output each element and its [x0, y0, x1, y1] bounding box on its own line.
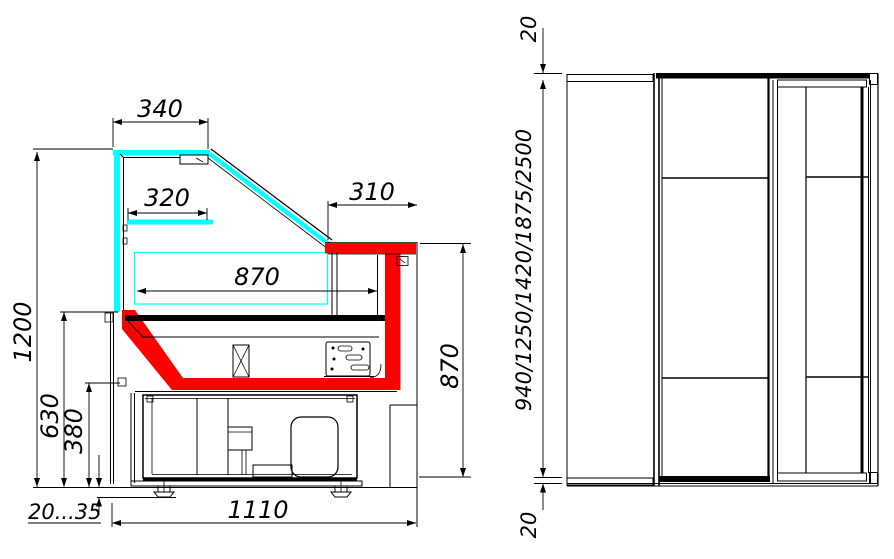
door2-top-strip [778, 80, 867, 87]
dim-canopy-width-label: 340 [137, 95, 183, 123]
canopy-structure [120, 149, 332, 310]
front-lower-bracket [118, 378, 126, 386]
door2-bottom-strip [778, 473, 867, 481]
starter-box [228, 427, 252, 450]
cabinet-outline [567, 73, 878, 486]
corner-bracket-right [347, 396, 353, 402]
front-view-dimensions: 20 940/1250/1420/1875/2500 20 [512, 16, 562, 539]
front-view: 20 940/1250/1420/1875/2500 20 [512, 16, 878, 539]
glass-panels [113, 150, 330, 312]
red-worktop [325, 243, 416, 254]
dim-length-options-label: 940/1250/1420/1875/2500 [512, 129, 536, 411]
lamp-mark [196, 158, 203, 162]
technical-drawing-page: 340 320 310 870 1200 [0, 0, 894, 559]
foot-pad-left [154, 492, 174, 497]
slant-glass-upper-edge [211, 149, 332, 240]
machine-housing [143, 395, 357, 478]
lamp-housing [180, 155, 208, 164]
panel-dot-1 [332, 347, 335, 350]
dim-top-panel-label: 20 [517, 16, 541, 43]
side-view-dimensions: 340 320 310 870 1200 [9, 95, 471, 527]
display-opening-outline [135, 253, 328, 305]
panel-dot-3 [333, 358, 336, 361]
dim-base-width-label: 1110 [227, 496, 288, 524]
dim-worktop-width-label: 310 [349, 178, 395, 206]
foot-pad-right [331, 492, 351, 497]
slanted-glass-panel [210, 154, 330, 245]
well-corner-radius [370, 364, 381, 378]
vent-slot-1 [338, 346, 352, 351]
dim-base-height-label: 380 [60, 408, 88, 454]
glass-shelf [127, 220, 213, 225]
panel-dot-2 [362, 348, 365, 351]
front-panel-bracket [105, 313, 113, 322]
display-case-drawing: 340 320 310 870 1200 [0, 0, 894, 559]
worktop-bracket-mark [400, 259, 405, 263]
compressor [291, 417, 338, 477]
side-section-view: 340 320 310 870 1200 [9, 95, 471, 527]
vent-slot-2 [346, 355, 362, 360]
front-glass-panel [114, 150, 120, 312]
panel-dot-4 [331, 368, 334, 371]
dim-bottom-panel-label: 20 [517, 512, 541, 539]
dim-display-depth-label: 870 [234, 263, 280, 291]
deck-surface [125, 315, 385, 321]
dim-shelf-width-label: 320 [144, 184, 190, 212]
vent-slot-3 [351, 365, 369, 370]
dim-overall-height-label: 1200 [9, 301, 37, 362]
slant-glass-lower-edge [208, 158, 328, 249]
door1-bottom-bar [659, 476, 770, 482]
dim-foot-adjustment-label: 20...35 [28, 500, 101, 524]
compressor-tray [253, 465, 292, 477]
dim-back-height-label: 870 [436, 343, 464, 389]
end-panel-top-strip [567, 75, 653, 82]
top-track-bar [656, 73, 870, 79]
base-frame [131, 481, 362, 486]
